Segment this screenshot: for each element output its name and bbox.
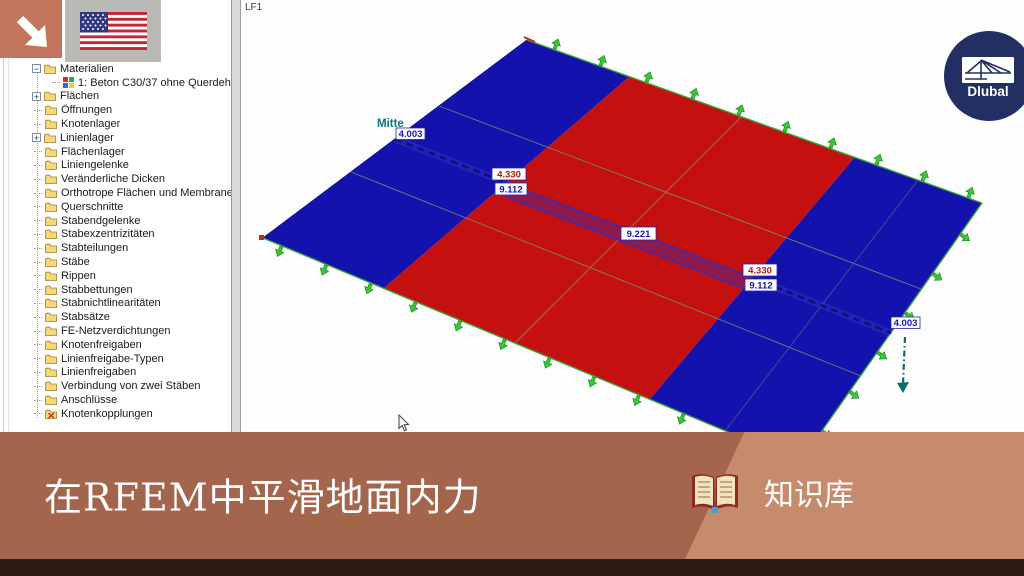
tree-item[interactable]: +Linienlager xyxy=(0,131,231,145)
folder-icon xyxy=(45,119,57,129)
tree-item-label: 1: Beton C30/37 ohne Querdehnung xyxy=(78,77,231,89)
panel-scrollbar[interactable] xyxy=(231,0,241,432)
tree-branch-line xyxy=(34,289,42,290)
us-flag-icon xyxy=(80,12,147,50)
folder-icon xyxy=(45,271,57,281)
tree-branch-line xyxy=(34,344,42,345)
svg-text:4.330: 4.330 xyxy=(497,170,521,181)
load-case-label: LF1 xyxy=(245,2,262,13)
tree-item-label: Stabnichtlinearitäten xyxy=(61,297,161,309)
value-label-center: 9.221 xyxy=(621,227,656,240)
knowledge-base-label: 知识库 xyxy=(764,470,854,514)
tree-branch-line xyxy=(34,110,42,111)
tree-item-label: Stäbe xyxy=(61,256,90,268)
folder-icon xyxy=(45,147,57,157)
tree-branch-line xyxy=(34,400,42,401)
svg-text:4.003: 4.003 xyxy=(399,129,423,140)
folder-icon xyxy=(45,188,57,198)
footer-strip xyxy=(0,559,1024,576)
tree-item[interactable]: Veränderliche Dicken xyxy=(0,172,231,186)
navigator-panel[interactable]: −Materialien1: Beton C30/37 ohne Querdeh… xyxy=(0,0,231,432)
tree-branch-line xyxy=(34,303,42,304)
tree-item[interactable]: FE-Netzverdichtungen xyxy=(0,324,231,338)
tree-item[interactable]: Knotenlager xyxy=(0,117,231,131)
folder-icon xyxy=(45,229,57,239)
tree-item-label: Orthotrope Flächen und Membranen xyxy=(61,187,231,199)
folder-icon xyxy=(45,160,57,170)
title-banner: 在RFEM中平滑地面内力 知识库 xyxy=(0,432,1024,559)
tree-branch-line xyxy=(34,220,42,221)
tree-branch-line xyxy=(34,317,42,318)
tree-branch-line xyxy=(34,275,42,276)
tree-item-label: Veränderliche Dicken xyxy=(61,173,165,185)
left-corner-mark xyxy=(259,235,264,240)
tree-item-label: Querschnitte xyxy=(61,201,123,213)
tree-item[interactable]: Flächenlager xyxy=(0,145,231,159)
tree-item-label: Verbindung von zwei Stäben xyxy=(61,380,200,392)
tree-branch-line xyxy=(34,124,42,125)
tree-item[interactable]: Stabbettungen xyxy=(0,283,231,297)
svg-text:9.221: 9.221 xyxy=(627,229,651,240)
tree-item-label: Öffnungen xyxy=(61,104,112,116)
folder-icon xyxy=(45,174,57,184)
language-flag-tile xyxy=(65,0,161,62)
dlubal-logo-graphic: Dlubal xyxy=(938,26,1024,126)
svg-text:4.330: 4.330 xyxy=(748,266,772,277)
folder-icon xyxy=(45,340,57,350)
tree-item[interactable]: Anschlüsse xyxy=(0,393,231,407)
section-arrow xyxy=(897,337,909,393)
tree-branch-line xyxy=(34,179,42,180)
svg-text:9.112: 9.112 xyxy=(499,185,522,196)
tree-item[interactable]: +Flächen xyxy=(0,90,231,104)
tree-item-label: Knotenfreigaben xyxy=(61,339,142,351)
folder-icon xyxy=(44,133,56,143)
folder-icon xyxy=(44,91,56,101)
folder-icon xyxy=(45,326,57,336)
tree-item[interactable]: Stabteilungen xyxy=(0,241,231,255)
xfolder-icon xyxy=(45,409,57,419)
tree-branch-line xyxy=(34,193,42,194)
tree-item-label: FE-Netzverdichtungen xyxy=(61,325,170,337)
tree-item-label: Stabbettungen xyxy=(61,284,133,296)
folder-icon xyxy=(45,257,57,267)
folder-icon xyxy=(45,298,57,308)
tree-item[interactable]: Rippen xyxy=(0,269,231,283)
tree-branch-line xyxy=(34,165,42,166)
tree-item[interactable]: Linienfreigaben xyxy=(0,366,231,380)
tree-item-label: Flächen xyxy=(60,90,99,102)
folder-icon xyxy=(44,64,56,74)
collapse-toggle-icon[interactable]: − xyxy=(32,64,41,73)
dlubal-logo: Dlubal xyxy=(938,26,1024,126)
tree-item-label: Stabsätze xyxy=(61,311,110,323)
tree-item-label: Stabexzentrizitäten xyxy=(61,228,155,240)
tree-item[interactable]: Knotenkopplungen xyxy=(0,407,231,421)
tree-item-label: Stabendgelenke xyxy=(61,215,141,227)
screenshot-stage: −Materialien1: Beton C30/37 ohne Querdeh… xyxy=(0,0,1024,576)
tree-item[interactable]: Liniengelenke xyxy=(0,159,231,173)
tree-item-label: Knotenlager xyxy=(61,118,120,130)
tree-item-label: Liniengelenke xyxy=(61,159,129,171)
tree-branch-line xyxy=(52,82,60,83)
tree-branch-line xyxy=(34,331,42,332)
tree-branch-line xyxy=(34,262,42,263)
value-label-left-end: 4.003 xyxy=(396,128,425,140)
tree-item[interactable]: Stäbe xyxy=(0,255,231,269)
mouse-cursor xyxy=(398,414,410,432)
folder-icon xyxy=(45,285,57,295)
tree-item-label: Linienlager xyxy=(60,132,114,144)
tree-item-label: Linienfreigabe-Typen xyxy=(61,353,164,365)
viewport-3d[interactable]: LF1 xyxy=(241,0,1024,432)
tree-item[interactable]: Querschnitte xyxy=(0,200,231,214)
tree-item-label: Rippen xyxy=(61,270,96,282)
folder-icon xyxy=(45,354,57,364)
open-book-icon xyxy=(688,470,742,514)
folder-icon xyxy=(45,202,57,212)
material-icon xyxy=(63,77,74,88)
folder-icon xyxy=(45,216,57,226)
tree-item[interactable]: Linienfreigabe-Typen xyxy=(0,352,231,366)
tree-item[interactable]: Stabexzentrizitäten xyxy=(0,228,231,242)
tree-branch-line xyxy=(34,372,42,373)
tree-item-label: Knotenkopplungen xyxy=(61,408,153,420)
tree-item-list: −Materialien1: Beton C30/37 ohne Querdeh… xyxy=(0,62,231,421)
tree-item[interactable]: Stabsätze xyxy=(0,310,231,324)
dlubal-logo-text: Dlubal xyxy=(967,84,1008,99)
tree-item[interactable]: Knotenfreigaben xyxy=(0,338,231,352)
corner-arrow-icon xyxy=(0,0,62,58)
tree-item-label: Materialien xyxy=(60,63,114,75)
tree-branch-line xyxy=(34,358,42,359)
tree-branch-line xyxy=(34,234,42,235)
tree-branch-line xyxy=(34,206,42,207)
tree-item[interactable]: Verbindung von zwei Stäben xyxy=(0,379,231,393)
page-title: 在RFEM中平滑地面内力 xyxy=(44,466,482,521)
corner-arrow-tile xyxy=(0,0,62,58)
tree-branch-line xyxy=(34,248,42,249)
folder-icon xyxy=(45,381,57,391)
tree-branch-line xyxy=(34,386,42,387)
tree-item[interactable]: Orthotrope Flächen und Membranen xyxy=(0,186,231,200)
tree-item-label: Linienfreigaben xyxy=(61,366,136,378)
folder-icon xyxy=(45,395,57,405)
svg-text:4.003: 4.003 xyxy=(894,318,918,329)
folder-icon xyxy=(45,105,57,115)
expand-toggle-icon[interactable]: + xyxy=(32,92,41,101)
tree-branch-line xyxy=(34,151,42,152)
tree-item-label: Flächenlager xyxy=(61,146,125,158)
knowledge-base-badge: 知识库 xyxy=(688,470,854,514)
plate-scene: Mitte 4.003 4.330 9.112 9.221 4.330 9.11… xyxy=(241,0,1024,432)
tree-item[interactable]: Stabnichtlinearitäten xyxy=(0,297,231,311)
tree-branch-line xyxy=(34,413,42,414)
tree-item[interactable]: Stabendgelenke xyxy=(0,214,231,228)
svg-text:9.112: 9.112 xyxy=(749,281,772,292)
folder-icon xyxy=(45,243,57,253)
tree-item[interactable]: −Materialien xyxy=(0,62,231,76)
expand-toggle-icon[interactable]: + xyxy=(32,133,41,142)
tree-item[interactable]: 1: Beton C30/37 ohne Querdehnung xyxy=(0,76,231,90)
value-label-right-end: 4.003 xyxy=(891,317,920,329)
tree-item-label: Stabteilungen xyxy=(61,242,128,254)
tree-item[interactable]: Öffnungen xyxy=(0,103,231,117)
tree-item-label: Anschlüsse xyxy=(61,394,117,406)
folder-icon xyxy=(45,312,57,322)
folder-icon xyxy=(45,367,57,377)
